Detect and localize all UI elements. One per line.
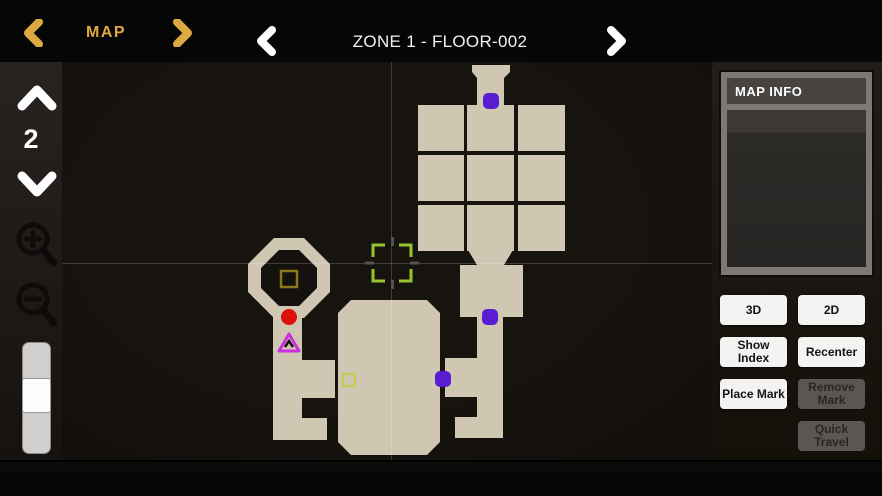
map-viewport[interactable] <box>62 62 712 460</box>
zoom-in-icon[interactable] <box>12 218 60 270</box>
map-screen: MAP ZONE 1 - FLOOR-002 2 <box>0 0 882 496</box>
right-panel: MAP INFO 3D 2D Show Index Recenter Place… <box>712 62 882 460</box>
room-left-comb <box>273 314 335 440</box>
room-grid-cell-2-2 <box>467 155 514 201</box>
view-3d-button[interactable]: 3D <box>720 295 787 325</box>
map-tab-label: MAP <box>86 24 126 42</box>
red-marker-icon <box>281 309 297 325</box>
map-info-body <box>727 110 866 267</box>
room-grid-cell-2-1 <box>418 155 464 201</box>
place-mark-button[interactable]: Place Mark <box>720 379 787 409</box>
door-marker-top-icon <box>483 93 499 109</box>
recenter-button[interactable]: Recenter <box>798 337 865 367</box>
map-canvas <box>62 62 712 460</box>
room-grid-cell-3-1 <box>418 205 464 251</box>
map-tab-prev-icon[interactable] <box>20 19 48 47</box>
map-info-box: MAP INFO <box>721 72 872 275</box>
zoom-out-icon[interactable] <box>12 278 60 330</box>
remove-mark-button[interactable]: Remove Mark <box>798 379 865 409</box>
zoom-slider-handle[interactable] <box>22 378 51 413</box>
floor-up-icon[interactable] <box>15 80 59 116</box>
door-marker-low-icon <box>435 371 451 387</box>
floor-down-icon[interactable] <box>15 166 59 202</box>
show-index-button[interactable]: Show Index <box>720 337 787 367</box>
map-info-title: MAP INFO <box>727 78 866 104</box>
floor-title: ZONE 1 - FLOOR-002 <box>320 32 560 52</box>
button-spacer <box>720 421 787 451</box>
room-right-comb <box>445 317 503 438</box>
top-bar: MAP ZONE 1 - FLOOR-002 <box>0 0 882 62</box>
view-2d-button[interactable]: 2D <box>798 295 865 325</box>
current-floor-number: 2 <box>0 124 62 155</box>
door-marker-mid-icon <box>482 309 498 325</box>
content-row: 2 MAP INF <box>0 62 882 460</box>
room-grid-neck <box>468 250 513 265</box>
room-grid-cell-3-2 <box>467 205 514 251</box>
room-grid-cell-1-1 <box>418 105 464 151</box>
floor-next-icon[interactable] <box>604 26 630 56</box>
room-grid-cell-1-2 <box>467 105 514 151</box>
map-button-grid: 3D 2D Show Index Recenter Place Mark Rem… <box>720 295 876 451</box>
bottom-bar <box>0 460 882 496</box>
room-grid-cell-2-3 <box>518 155 565 201</box>
quick-travel-button[interactable]: Quick Travel <box>798 421 865 451</box>
room-grid-cell-1-3 <box>518 105 565 151</box>
zoom-slider-track[interactable] <box>22 342 51 454</box>
room-grid-cell-3-3 <box>518 205 565 251</box>
map-tab-next-icon[interactable] <box>168 19 196 47</box>
room-big-room <box>338 300 440 455</box>
floor-prev-icon[interactable] <box>253 26 279 56</box>
left-toolbar: 2 <box>0 62 62 460</box>
